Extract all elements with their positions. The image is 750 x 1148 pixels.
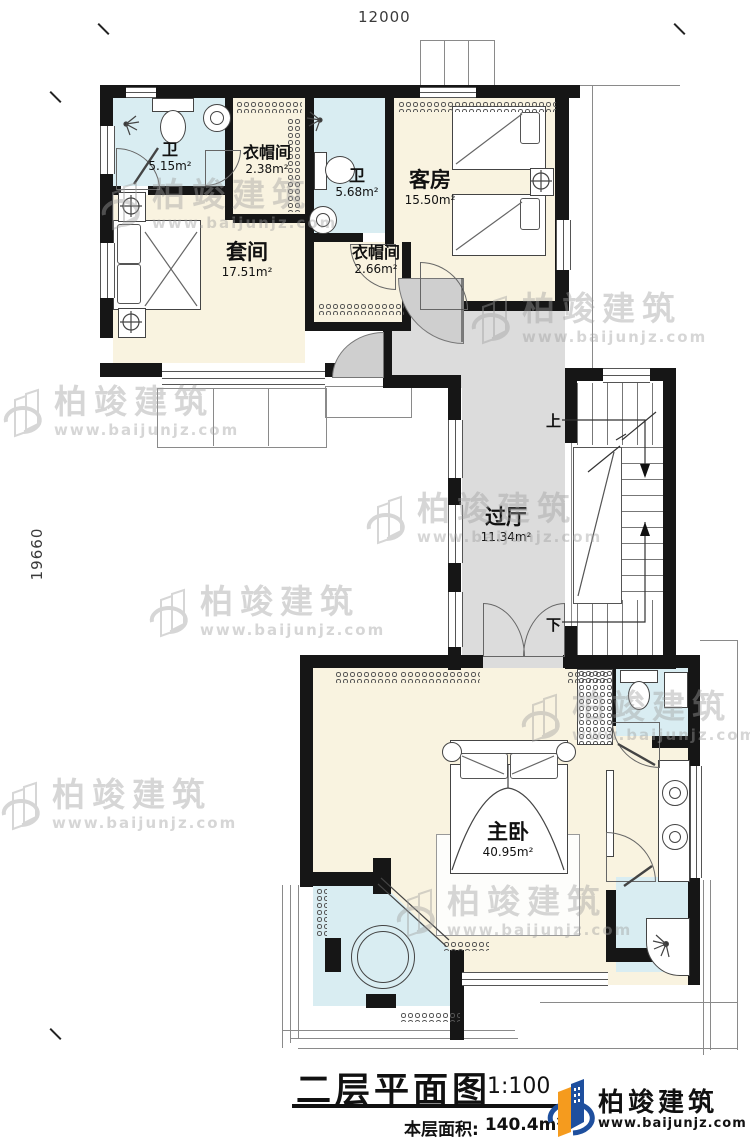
- watermark-logo-icon: [2, 386, 46, 438]
- nightstand: [530, 168, 554, 196]
- room-label-bath1: 卫5.15m²: [148, 140, 191, 174]
- wall: [100, 85, 580, 98]
- pillow: [460, 753, 508, 779]
- brand-name: 柏竣建筑: [598, 1082, 718, 1119]
- balcony-door-swing: [332, 332, 384, 378]
- drawing-scale: 1:100: [487, 1074, 550, 1099]
- wall: [313, 322, 409, 331]
- window: [100, 243, 115, 298]
- brand-url: www.baijunjz.com: [598, 1116, 747, 1131]
- bedside-lamp-icon: [556, 742, 576, 762]
- window: [462, 972, 608, 986]
- wall: [313, 233, 363, 242]
- balcony-outline: [420, 40, 495, 87]
- wall: [300, 655, 313, 887]
- wall: [366, 994, 396, 1008]
- dimension-tick: [673, 23, 685, 35]
- stair-flight-top: [577, 383, 663, 445]
- stair-up-label: 上: [546, 410, 561, 431]
- wall-niche: [664, 672, 688, 708]
- dimension-tick: [49, 91, 61, 103]
- wall: [305, 240, 314, 331]
- pillow: [510, 753, 558, 779]
- wardrobe-hanger-hatch: [398, 101, 556, 112]
- bedside-lamp-icon: [442, 742, 462, 762]
- wall: [460, 301, 567, 311]
- washbasin-inner-icon: [316, 213, 330, 227]
- terrace-line: [540, 1002, 738, 1003]
- wall: [383, 375, 461, 388]
- pillow: [117, 224, 141, 264]
- wall: [555, 85, 569, 311]
- terrace-line: [290, 1038, 518, 1039]
- watermark-logo-icon: [0, 779, 44, 831]
- wall: [563, 655, 700, 668]
- stair-down-label: 下: [546, 614, 561, 635]
- stair-flight-side: [620, 447, 663, 600]
- toilet-bowl-icon: [628, 681, 650, 710]
- terrace-line: [710, 880, 711, 1050]
- wardrobe-hanger-hatch: [236, 101, 302, 113]
- wall: [385, 98, 394, 246]
- watermark: 柏竣建筑www.baijunjz.com: [148, 585, 385, 639]
- pillow: [117, 264, 141, 304]
- floor-plan-canvas: 卫5.15m² 衣帽间2.38m² 卫5.68m² 客房15.50m² 套间17…: [0, 0, 750, 1148]
- master-headboard: [450, 740, 568, 754]
- wall: [606, 890, 616, 952]
- room-label-closet1: 衣帽间2.38m²: [243, 143, 291, 177]
- terrace-line: [282, 885, 283, 1048]
- window: [420, 87, 476, 98]
- room-label-guest: 客房15.50m²: [405, 168, 456, 208]
- wall: [325, 938, 341, 972]
- window: [126, 87, 156, 98]
- nightstand: [118, 192, 146, 222]
- pillow: [520, 112, 540, 144]
- room-label-closet2: 衣帽间2.66m²: [352, 243, 400, 277]
- window: [162, 371, 325, 385]
- basin-inner-icon: [669, 787, 681, 799]
- wall: [450, 950, 464, 1040]
- wardrobe-hanger-hatch: [443, 941, 489, 951]
- wall: [100, 363, 162, 377]
- dimension-tick: [97, 23, 109, 35]
- wall: [100, 85, 113, 338]
- basin-counter: [658, 760, 690, 882]
- wardrobe-hanger-hatch: [316, 888, 327, 938]
- wall: [663, 368, 676, 668]
- window: [448, 420, 463, 478]
- wardrobe-hanger-hatch: [335, 671, 397, 683]
- stair-landing: [573, 447, 622, 604]
- wall: [565, 626, 577, 657]
- wardrobe-hanger-hatch: [400, 1012, 460, 1022]
- room-label-suite: 套间17.51m²: [222, 240, 273, 280]
- wardrobe-hanger-hatch: [318, 303, 404, 315]
- terrace-line: [571, 443, 572, 626]
- window: [556, 220, 571, 270]
- wall: [233, 214, 307, 223]
- wardrobe-hanger-hatch: [567, 671, 609, 683]
- wall: [688, 668, 700, 768]
- dimension-tick: [49, 1028, 61, 1040]
- round-tub-inner-icon: [357, 931, 409, 983]
- wall: [565, 381, 577, 443]
- terrace-line: [282, 1030, 515, 1031]
- room-label-hall: 过厅11.34m²: [481, 505, 532, 545]
- window: [448, 592, 463, 647]
- terrace-line: [298, 1048, 738, 1049]
- dimension-left-label: 19660: [28, 519, 46, 589]
- nightstand: [118, 308, 146, 338]
- balcony-outline: [325, 386, 412, 418]
- room-label-master: 主卧40.95m²: [483, 820, 534, 860]
- basin-inner-icon: [669, 831, 681, 843]
- terrace-line: [703, 880, 704, 1055]
- wall: [313, 655, 483, 668]
- floor-area-row: 本层面积: 140.4m²: [404, 1115, 564, 1140]
- window: [100, 126, 115, 174]
- washbasin-inner-icon: [210, 111, 224, 125]
- terrace-line: [592, 85, 593, 368]
- watermark-logo-icon: [365, 493, 409, 545]
- wall: [373, 858, 391, 894]
- baijun-logo-icon: [543, 1076, 595, 1138]
- title-underline: [292, 1104, 560, 1108]
- stair-flight-bottom: [577, 600, 663, 657]
- wall: [148, 186, 228, 195]
- window: [690, 766, 702, 878]
- terrace-line: [700, 640, 738, 641]
- wall: [565, 368, 603, 381]
- pillow: [520, 198, 540, 230]
- window: [448, 505, 463, 563]
- floor-area-label: 本层面积:: [404, 1115, 479, 1140]
- balcony-outline: [157, 388, 327, 448]
- toilet-bowl-icon: [160, 110, 186, 144]
- window: [603, 368, 650, 383]
- terrace-line: [737, 640, 738, 1050]
- terrace-line: [290, 885, 291, 1043]
- watermark: 柏竣建筑www.baijunjz.com: [0, 778, 237, 832]
- terrace-line: [580, 85, 680, 86]
- terrace-line: [298, 885, 299, 1038]
- wardrobe-hanger-hatch: [400, 671, 480, 683]
- room-label-bath2: 卫5.68m²: [335, 166, 378, 200]
- dimension-top-label: 12000: [358, 8, 411, 26]
- watermark-logo-icon: [148, 586, 192, 638]
